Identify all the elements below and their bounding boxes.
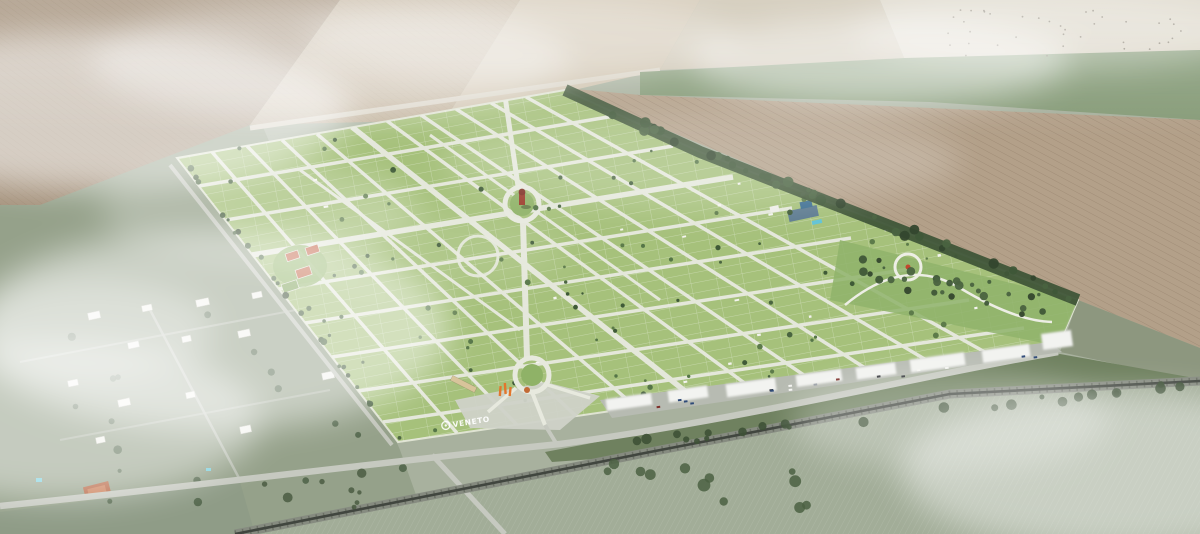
aerial-render: VENETO bbox=[0, 0, 1200, 534]
entrance-kiosk bbox=[524, 387, 530, 393]
atmosphere-veil bbox=[0, 0, 1200, 140]
